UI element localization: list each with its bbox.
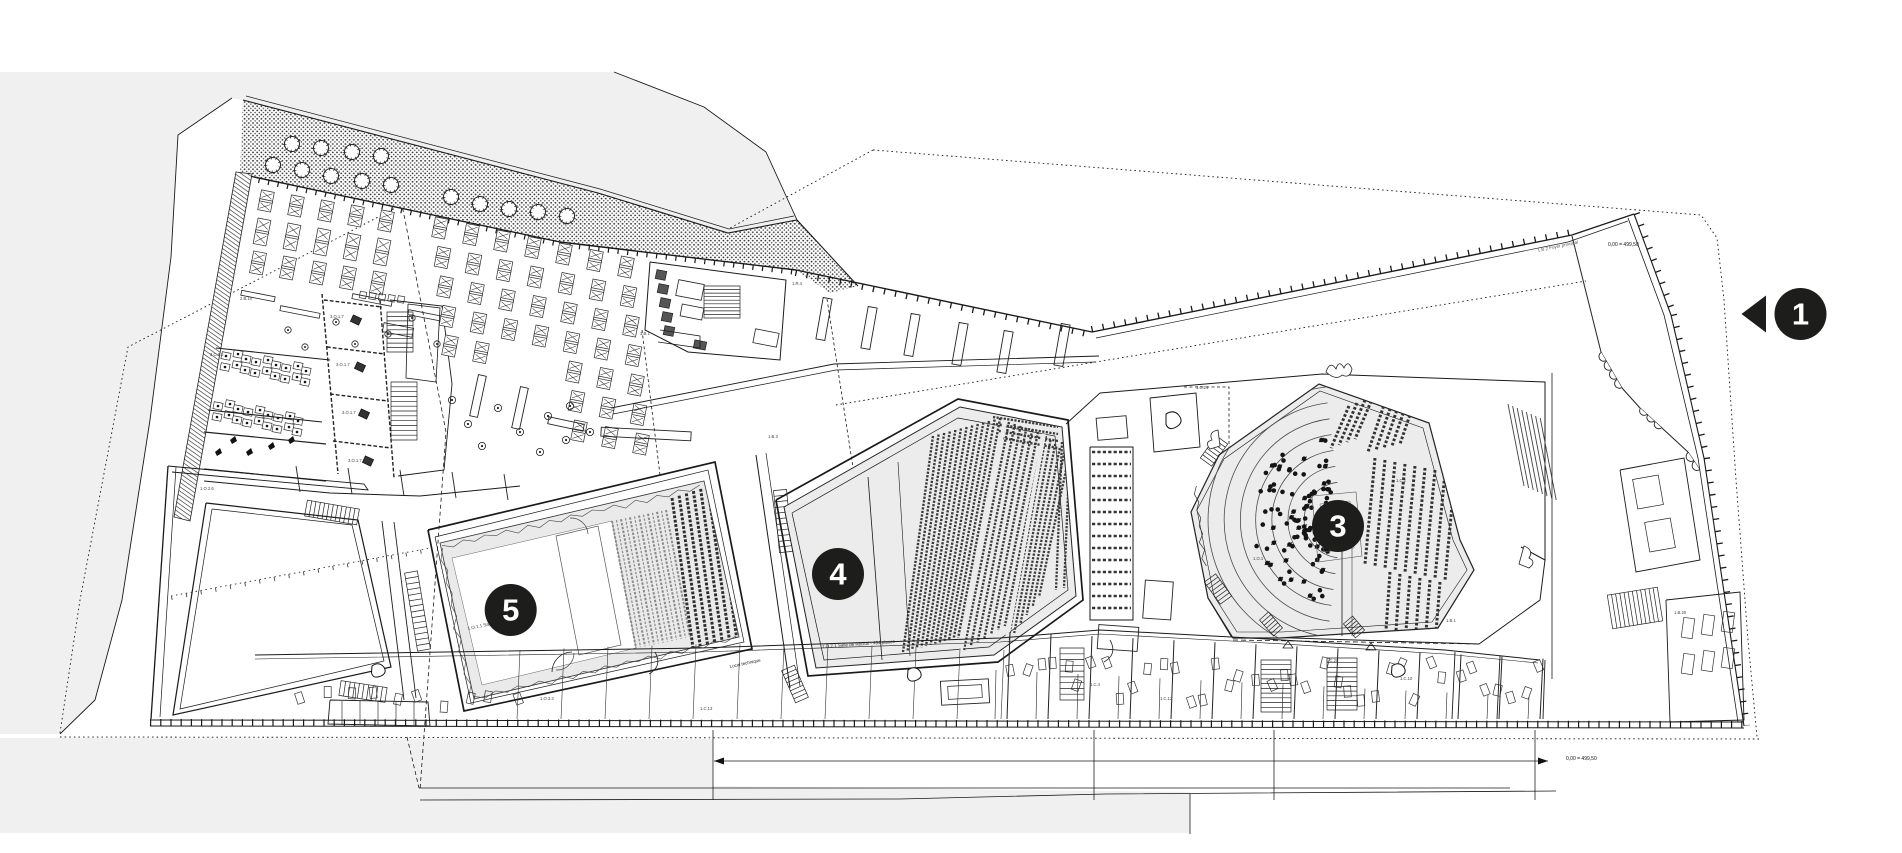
svg-text:2.B.10: 2.B.10: [240, 296, 253, 301]
svg-text:3.O.1.7: 3.O.1.7: [330, 314, 344, 319]
svg-text:0,00 = 499,50: 0,00 = 499,50: [1608, 242, 1639, 248]
svg-text:1.C.13: 1.C.13: [700, 706, 713, 711]
svg-text:1.O.3.3: 1.O.3.3: [540, 696, 554, 701]
svg-text:1.B.20: 1.B.20: [1674, 610, 1687, 615]
svg-text:1.C.2: 1.C.2: [1396, 478, 1407, 483]
svg-text:3.O.1.7: 3.O.1.7: [342, 410, 356, 415]
svg-text:1.B.1: 1.B.1: [1446, 618, 1456, 623]
svg-text:3.O.1.7: 3.O.1.7: [348, 458, 362, 463]
svg-text:4: 4: [829, 557, 847, 592]
svg-text:1: 1: [1792, 297, 1809, 332]
svg-text:3.B.1: 3.B.1: [640, 331, 650, 336]
svg-text:1.R.4: 1.R.4: [792, 281, 803, 286]
svg-text:1.C.10: 1.C.10: [1400, 676, 1413, 681]
svg-text:3: 3: [1329, 509, 1346, 544]
svg-text:0,00 = 499,50: 0,00 = 499,50: [1566, 756, 1597, 762]
svg-text:1.B.3: 1.B.3: [768, 434, 778, 439]
svg-text:1.O.2.6: 1.O.2.6: [200, 486, 214, 491]
svg-text:1.C.20: 1.C.20: [1326, 658, 1339, 663]
svg-text:1.O.1: 1.O.1: [1253, 556, 1264, 561]
svg-text:1.C.4: 1.C.4: [1090, 682, 1101, 687]
svg-text:1.C.12: 1.C.12: [1160, 696, 1173, 701]
svg-text:1.C.21: 1.C.21: [1196, 385, 1209, 390]
svg-text:3.C.6.5: 3.C.6.5: [210, 352, 224, 357]
svg-text:5: 5: [502, 593, 519, 628]
svg-text:3.O.1.7: 3.O.1.7: [336, 362, 350, 367]
